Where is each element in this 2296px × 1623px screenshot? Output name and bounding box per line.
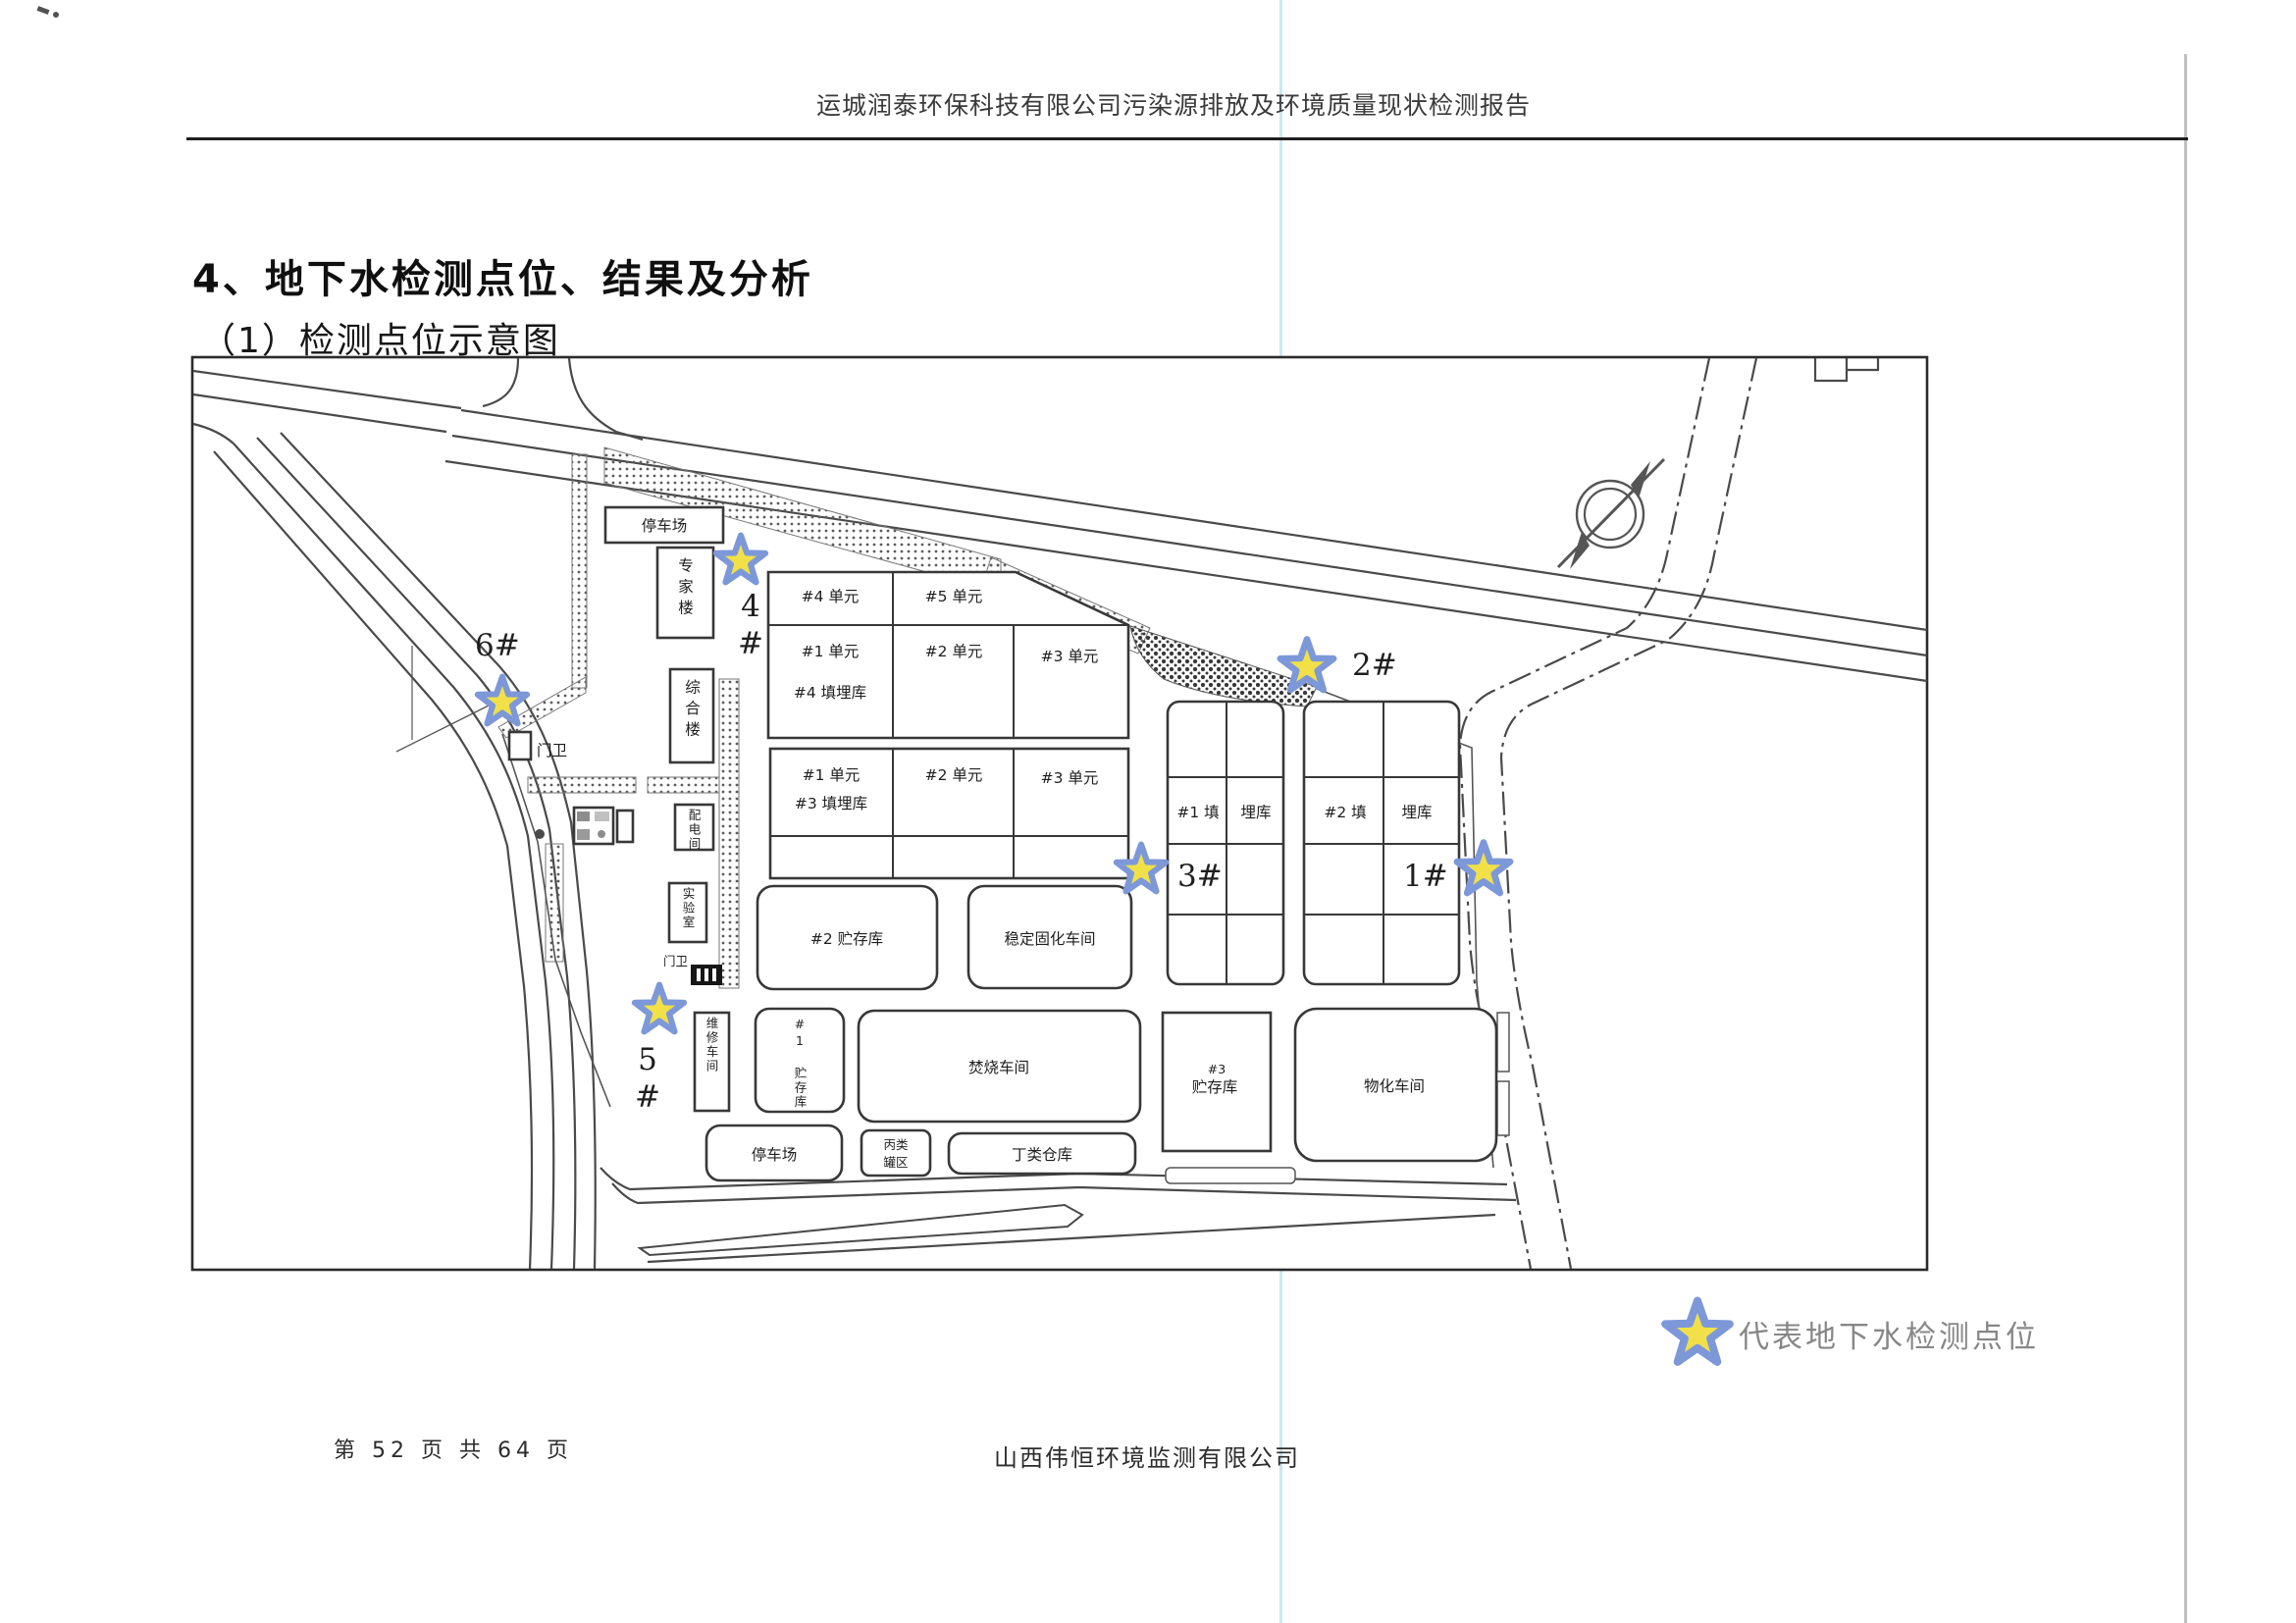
monitoring-point-label-4: 4# <box>733 589 768 663</box>
report-page: { "page": { "header": "运城润泰环保科技有限公司污染源排放… <box>0 0 2296 1623</box>
building-label: #2 单元 <box>925 766 983 784</box>
building-label: #3 单元 <box>1041 769 1099 787</box>
building-label: 罐区 <box>883 1155 908 1170</box>
building-label: 实验室 <box>681 886 696 930</box>
building-gatehouse-1 <box>509 732 531 759</box>
monitoring-point-label-1: 1# <box>1403 859 1448 894</box>
south-wall <box>1166 1168 1295 1183</box>
building-label: 维修车间 <box>704 1017 719 1073</box>
building-label: 停车场 <box>752 1146 798 1164</box>
building-label: 埋库 <box>1240 804 1271 821</box>
building-label: #1 单元 <box>802 643 860 660</box>
building-label: 专家楼 <box>676 557 694 621</box>
gate-barrier-icon <box>691 965 722 985</box>
building-label: #3 单元 <box>1041 648 1099 665</box>
hatch-strip-inner-east <box>719 679 739 988</box>
building-label: 贮存库 <box>1192 1078 1238 1096</box>
building-label: #5 单元 <box>925 588 983 605</box>
hatch-strip-inner-south <box>648 777 719 793</box>
building-label: #1 单元 <box>803 766 861 784</box>
legend-label: 代表地下水检测点位 <box>1739 1320 2039 1355</box>
building-label: 配电间 <box>687 809 702 852</box>
hatch-strip-sw <box>546 844 563 962</box>
fence-gate-block <box>1497 1013 1509 1072</box>
legend-star-icon <box>1665 1301 1730 1362</box>
building-label: 门卫 <box>663 954 688 969</box>
building-landfill-east: #1 填 埋库 #2 填 埋库 <box>1168 702 1459 984</box>
building-label: 丙类 <box>883 1137 909 1152</box>
building-label: 丁类仓库 <box>1012 1146 1072 1164</box>
hatch-strip-inner-south <box>528 777 636 793</box>
building-label: 综合楼 <box>683 679 701 743</box>
building-label: 门卫 <box>537 742 567 759</box>
building-label: 埋库 <box>1401 804 1432 821</box>
monitoring-point-label-2: 2# <box>1352 648 1397 683</box>
building-label: #2 填 <box>1324 804 1366 821</box>
building-label: 焚烧车间 <box>968 1059 1029 1076</box>
monitoring-point-label-5: 5# <box>630 1042 665 1117</box>
building-label: 物化车间 <box>1364 1077 1425 1095</box>
building-label: #2 贮存库 <box>810 930 883 948</box>
building-label: #1 填 <box>1176 804 1219 821</box>
building-label: #3 <box>1208 1062 1226 1076</box>
building-label: #2 单元 <box>925 643 983 660</box>
building-label: 停车场 <box>642 517 688 535</box>
building-label: #4 填埋库 <box>794 684 866 702</box>
building-label: #3 填埋库 <box>795 795 867 812</box>
monitoring-point-label-6: 6# <box>475 628 520 663</box>
hatch-strip-west <box>572 454 587 688</box>
building-label: #4 单元 <box>802 588 860 605</box>
fence-gate-block <box>1497 1081 1509 1135</box>
map-legend: 代表地下水检测点位 <box>1665 1301 2039 1362</box>
building-label: 稳定固化车间 <box>1004 930 1095 948</box>
building-units-lower: #1 单元 #2 单元 #3 单元 #3 填埋库 <box>770 749 1128 878</box>
monitoring-point-label-3: 3# <box>1177 859 1223 894</box>
building-label: #1 贮存库 <box>793 1017 808 1110</box>
site-plan-figure: 停车场 专家楼 综合楼 门卫 配电间 实验室 门卫 <box>0 0 2296 1623</box>
